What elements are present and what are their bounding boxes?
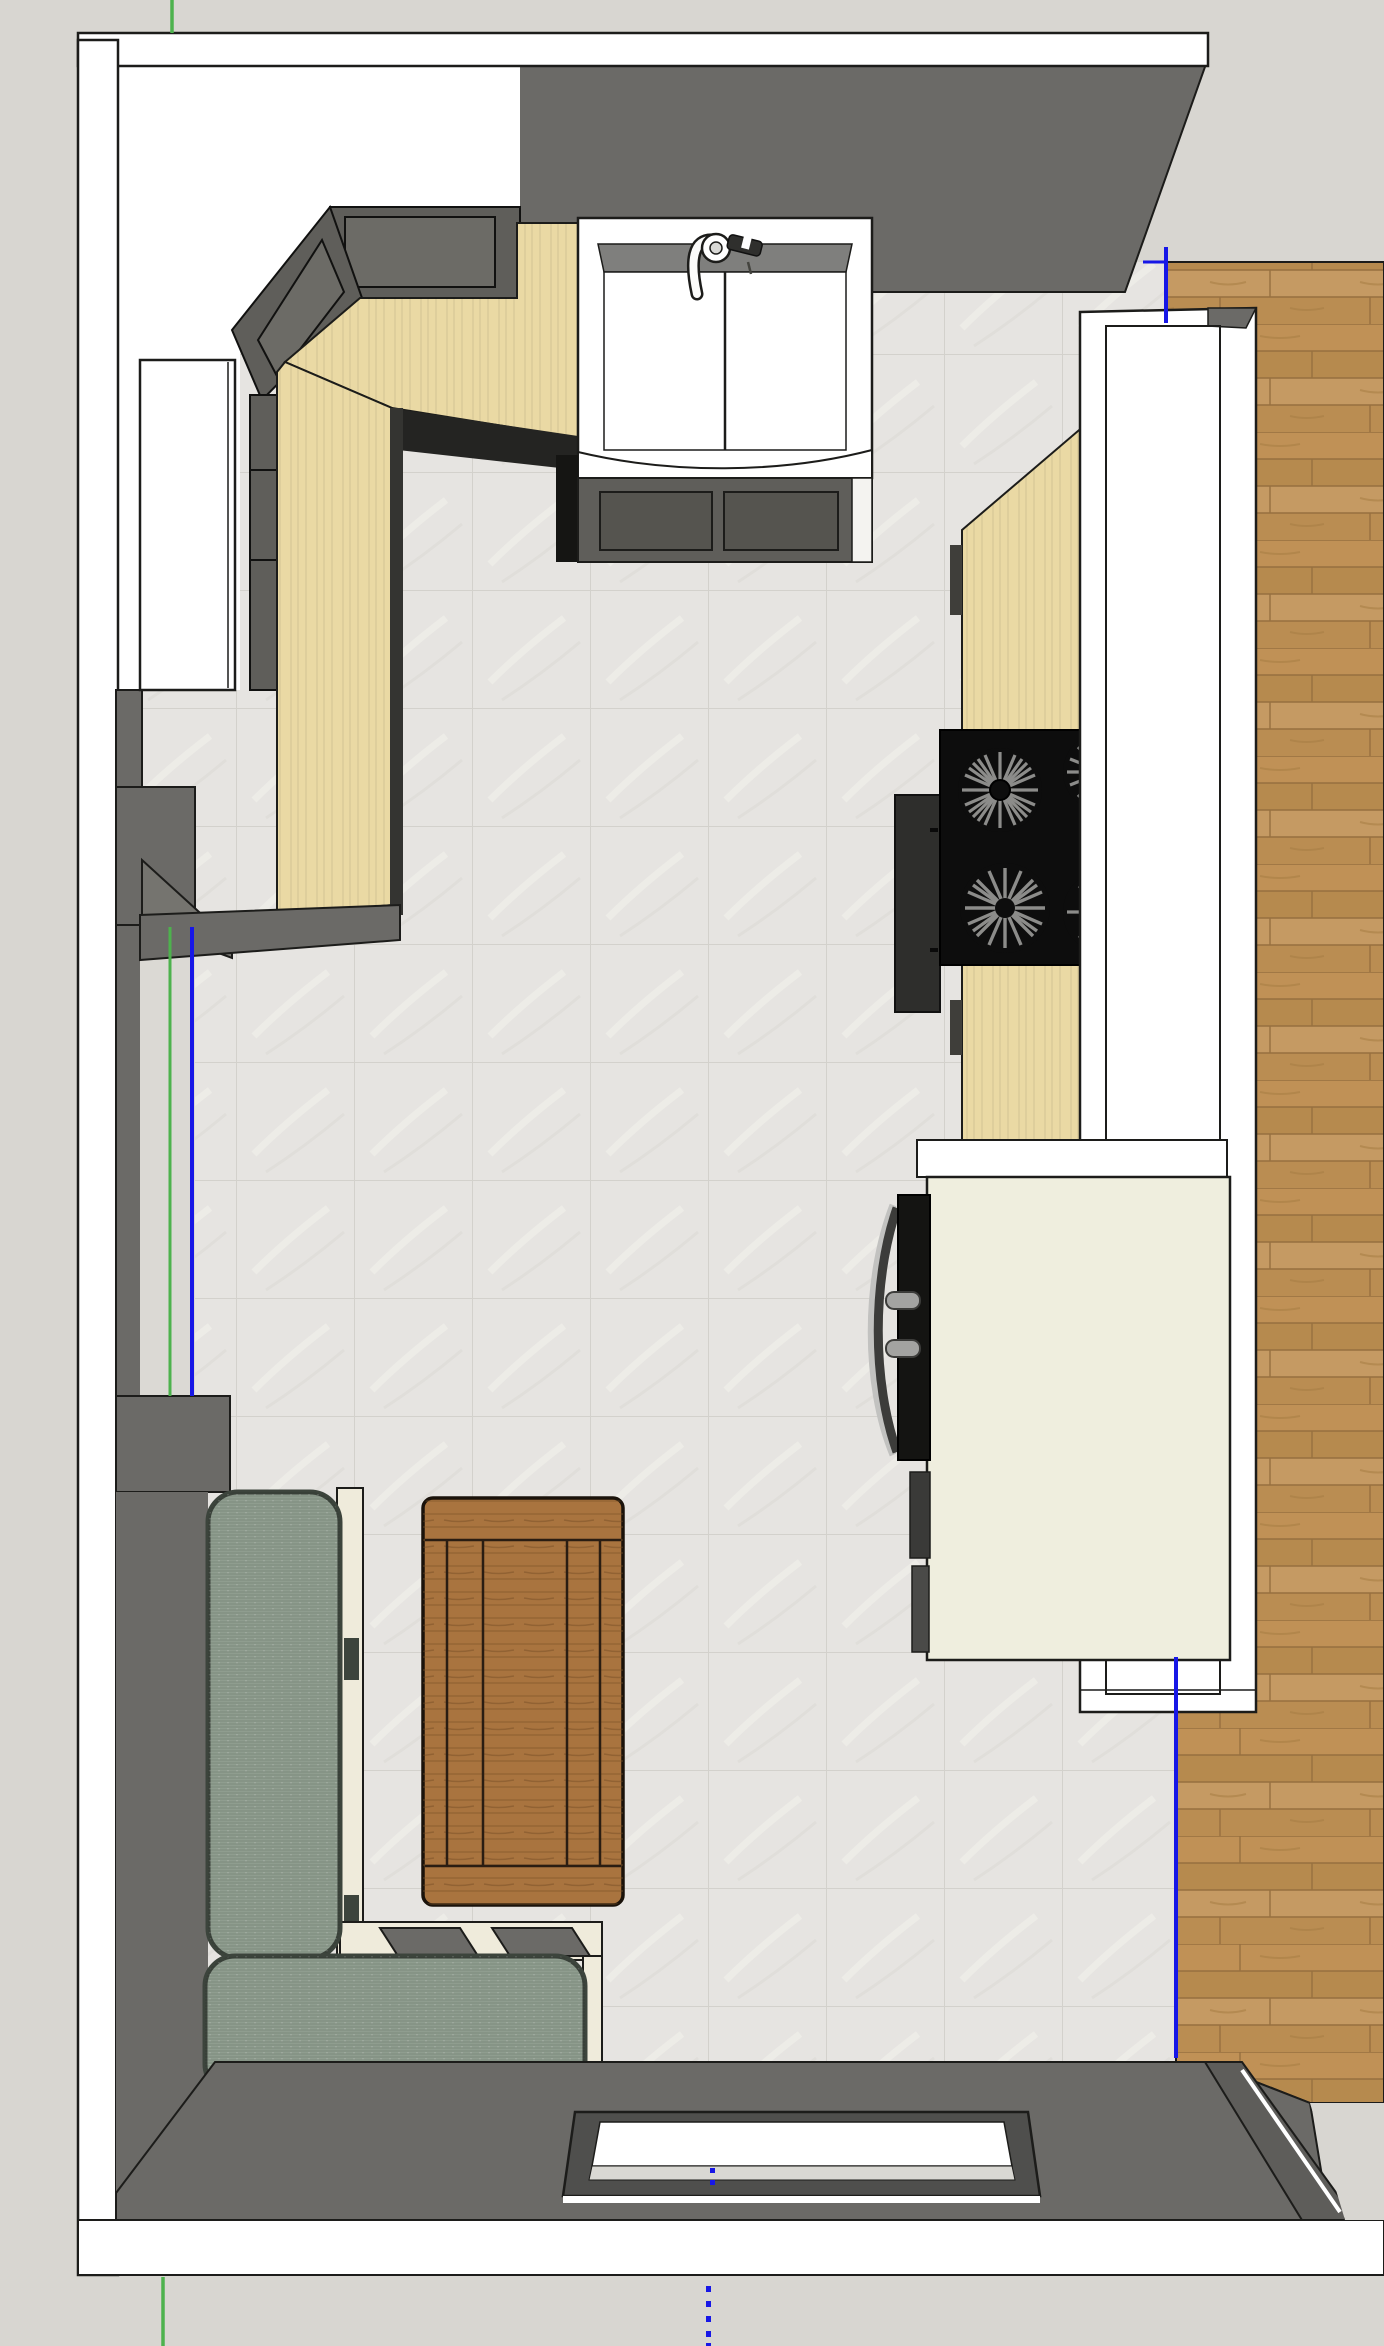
door-opening-left[interactable] (140, 925, 195, 1396)
island-north-ledge (917, 1140, 1227, 1177)
range-side-panel (895, 795, 940, 1012)
top-wall-band (78, 33, 1208, 66)
sink-cabinet-panel-left (600, 492, 712, 550)
counter-east-edge (950, 545, 962, 615)
door-jamb-bottom (116, 1396, 230, 1492)
sink-unit[interactable] (556, 218, 872, 562)
appliance-handle-bottom (886, 1340, 920, 1357)
sink-cabinet-panel-right (724, 492, 838, 550)
dining-table[interactable] (423, 1498, 623, 1905)
left-wall-band (78, 40, 118, 2275)
window-front-rim (563, 2196, 1040, 2203)
bench-back-panel2 (492, 1928, 590, 1956)
burner-front-right (960, 863, 1050, 953)
burner-front-left (958, 748, 1042, 832)
counter-east-edge2 (950, 1000, 962, 1055)
floorplan-canvas (0, 0, 1384, 2346)
under-sink-shadow (556, 455, 578, 562)
wall-appliance[interactable] (898, 1195, 930, 1460)
counter-side-shadow (390, 408, 403, 915)
sink-cabinet-side (852, 478, 872, 562)
bottom-wall[interactable] (78, 2062, 1384, 2275)
island[interactable] (871, 1140, 1230, 1660)
island-side-dark1 (910, 1472, 930, 1558)
window-sill (589, 2166, 1015, 2180)
window-glass (592, 2122, 1012, 2166)
bench-frame-notch1 (344, 1638, 359, 1680)
window-bottom[interactable] (563, 2112, 1040, 2203)
fridge-top[interactable] (140, 360, 235, 690)
bench-back-panel1 (380, 1928, 478, 1956)
island-top (927, 1177, 1230, 1660)
bench-cushion-vertical[interactable] (208, 1492, 340, 1958)
island-side-dark2 (912, 1566, 929, 1652)
bottom-wall-band (78, 2220, 1384, 2275)
appliance-handle-top (886, 1292, 920, 1309)
